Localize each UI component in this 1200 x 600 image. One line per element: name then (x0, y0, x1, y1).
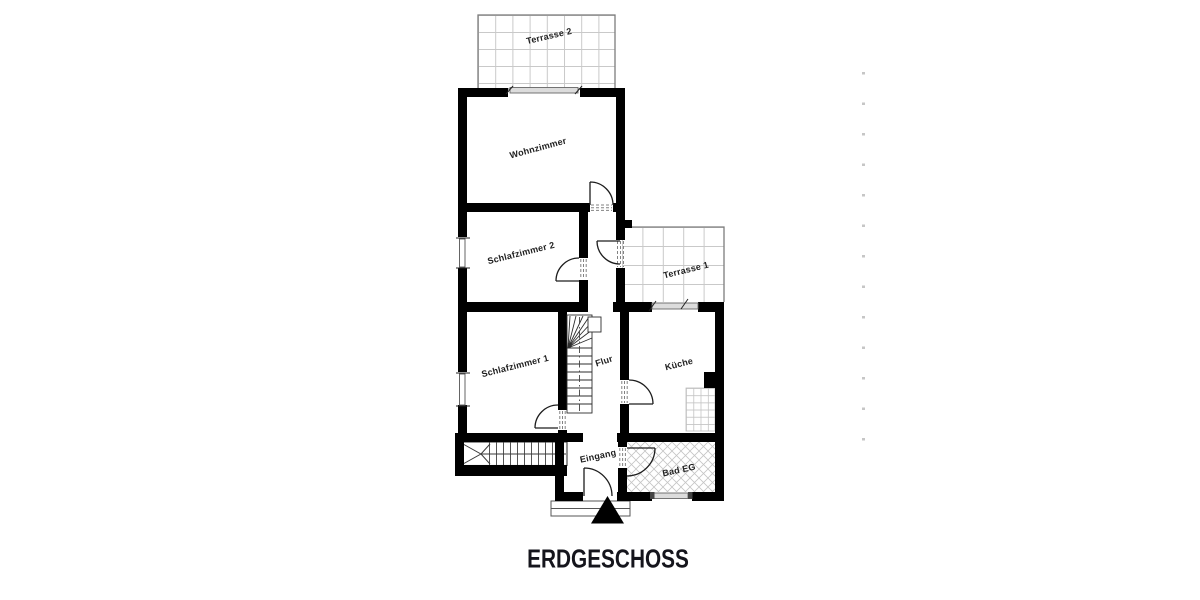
entry-steps (463, 442, 567, 466)
floor-plan: Terrasse 2 Wohnzimmer Schlafzimmer 2 Ter… (0, 0, 1200, 600)
kitchen-tiling (686, 388, 715, 431)
floor-plan-drawing (0, 0, 1200, 600)
porch-steps (551, 501, 630, 516)
terrace-2-tiles (478, 15, 615, 89)
floor-title: ERDGESCHOSS (527, 544, 689, 575)
